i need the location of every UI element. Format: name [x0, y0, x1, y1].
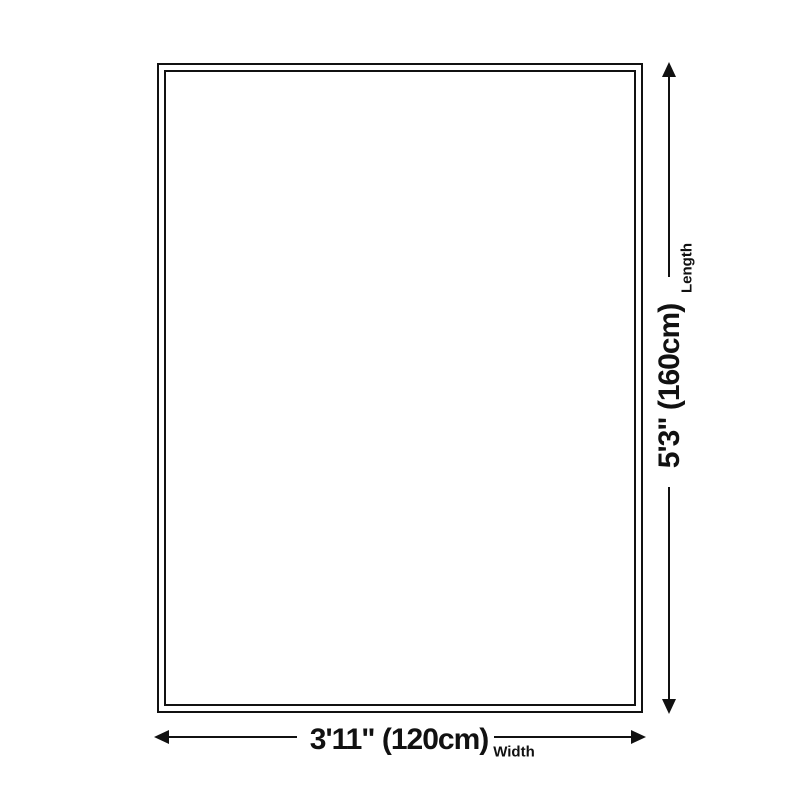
length-arrow-line-top — [668, 70, 670, 277]
length-dimension-value: 5'3" (160cm) — [653, 304, 687, 468]
width-axis-label: Width — [493, 744, 535, 761]
arrowhead-down-icon — [662, 699, 676, 714]
rug-outline-outer — [157, 63, 643, 713]
width-dimension-value: 3'11" (120cm) — [310, 723, 488, 757]
arrowhead-right-icon — [631, 730, 646, 744]
rug-outline-inner — [164, 70, 636, 706]
length-arrow-line-bottom — [668, 487, 670, 707]
width-arrow-line-right — [494, 736, 635, 738]
length-axis-label: Length — [679, 243, 696, 293]
rug-size-diagram: Length 5'3" (160cm) 3'11" (120cm) Width — [0, 0, 800, 800]
width-arrow-line-left — [164, 736, 297, 738]
